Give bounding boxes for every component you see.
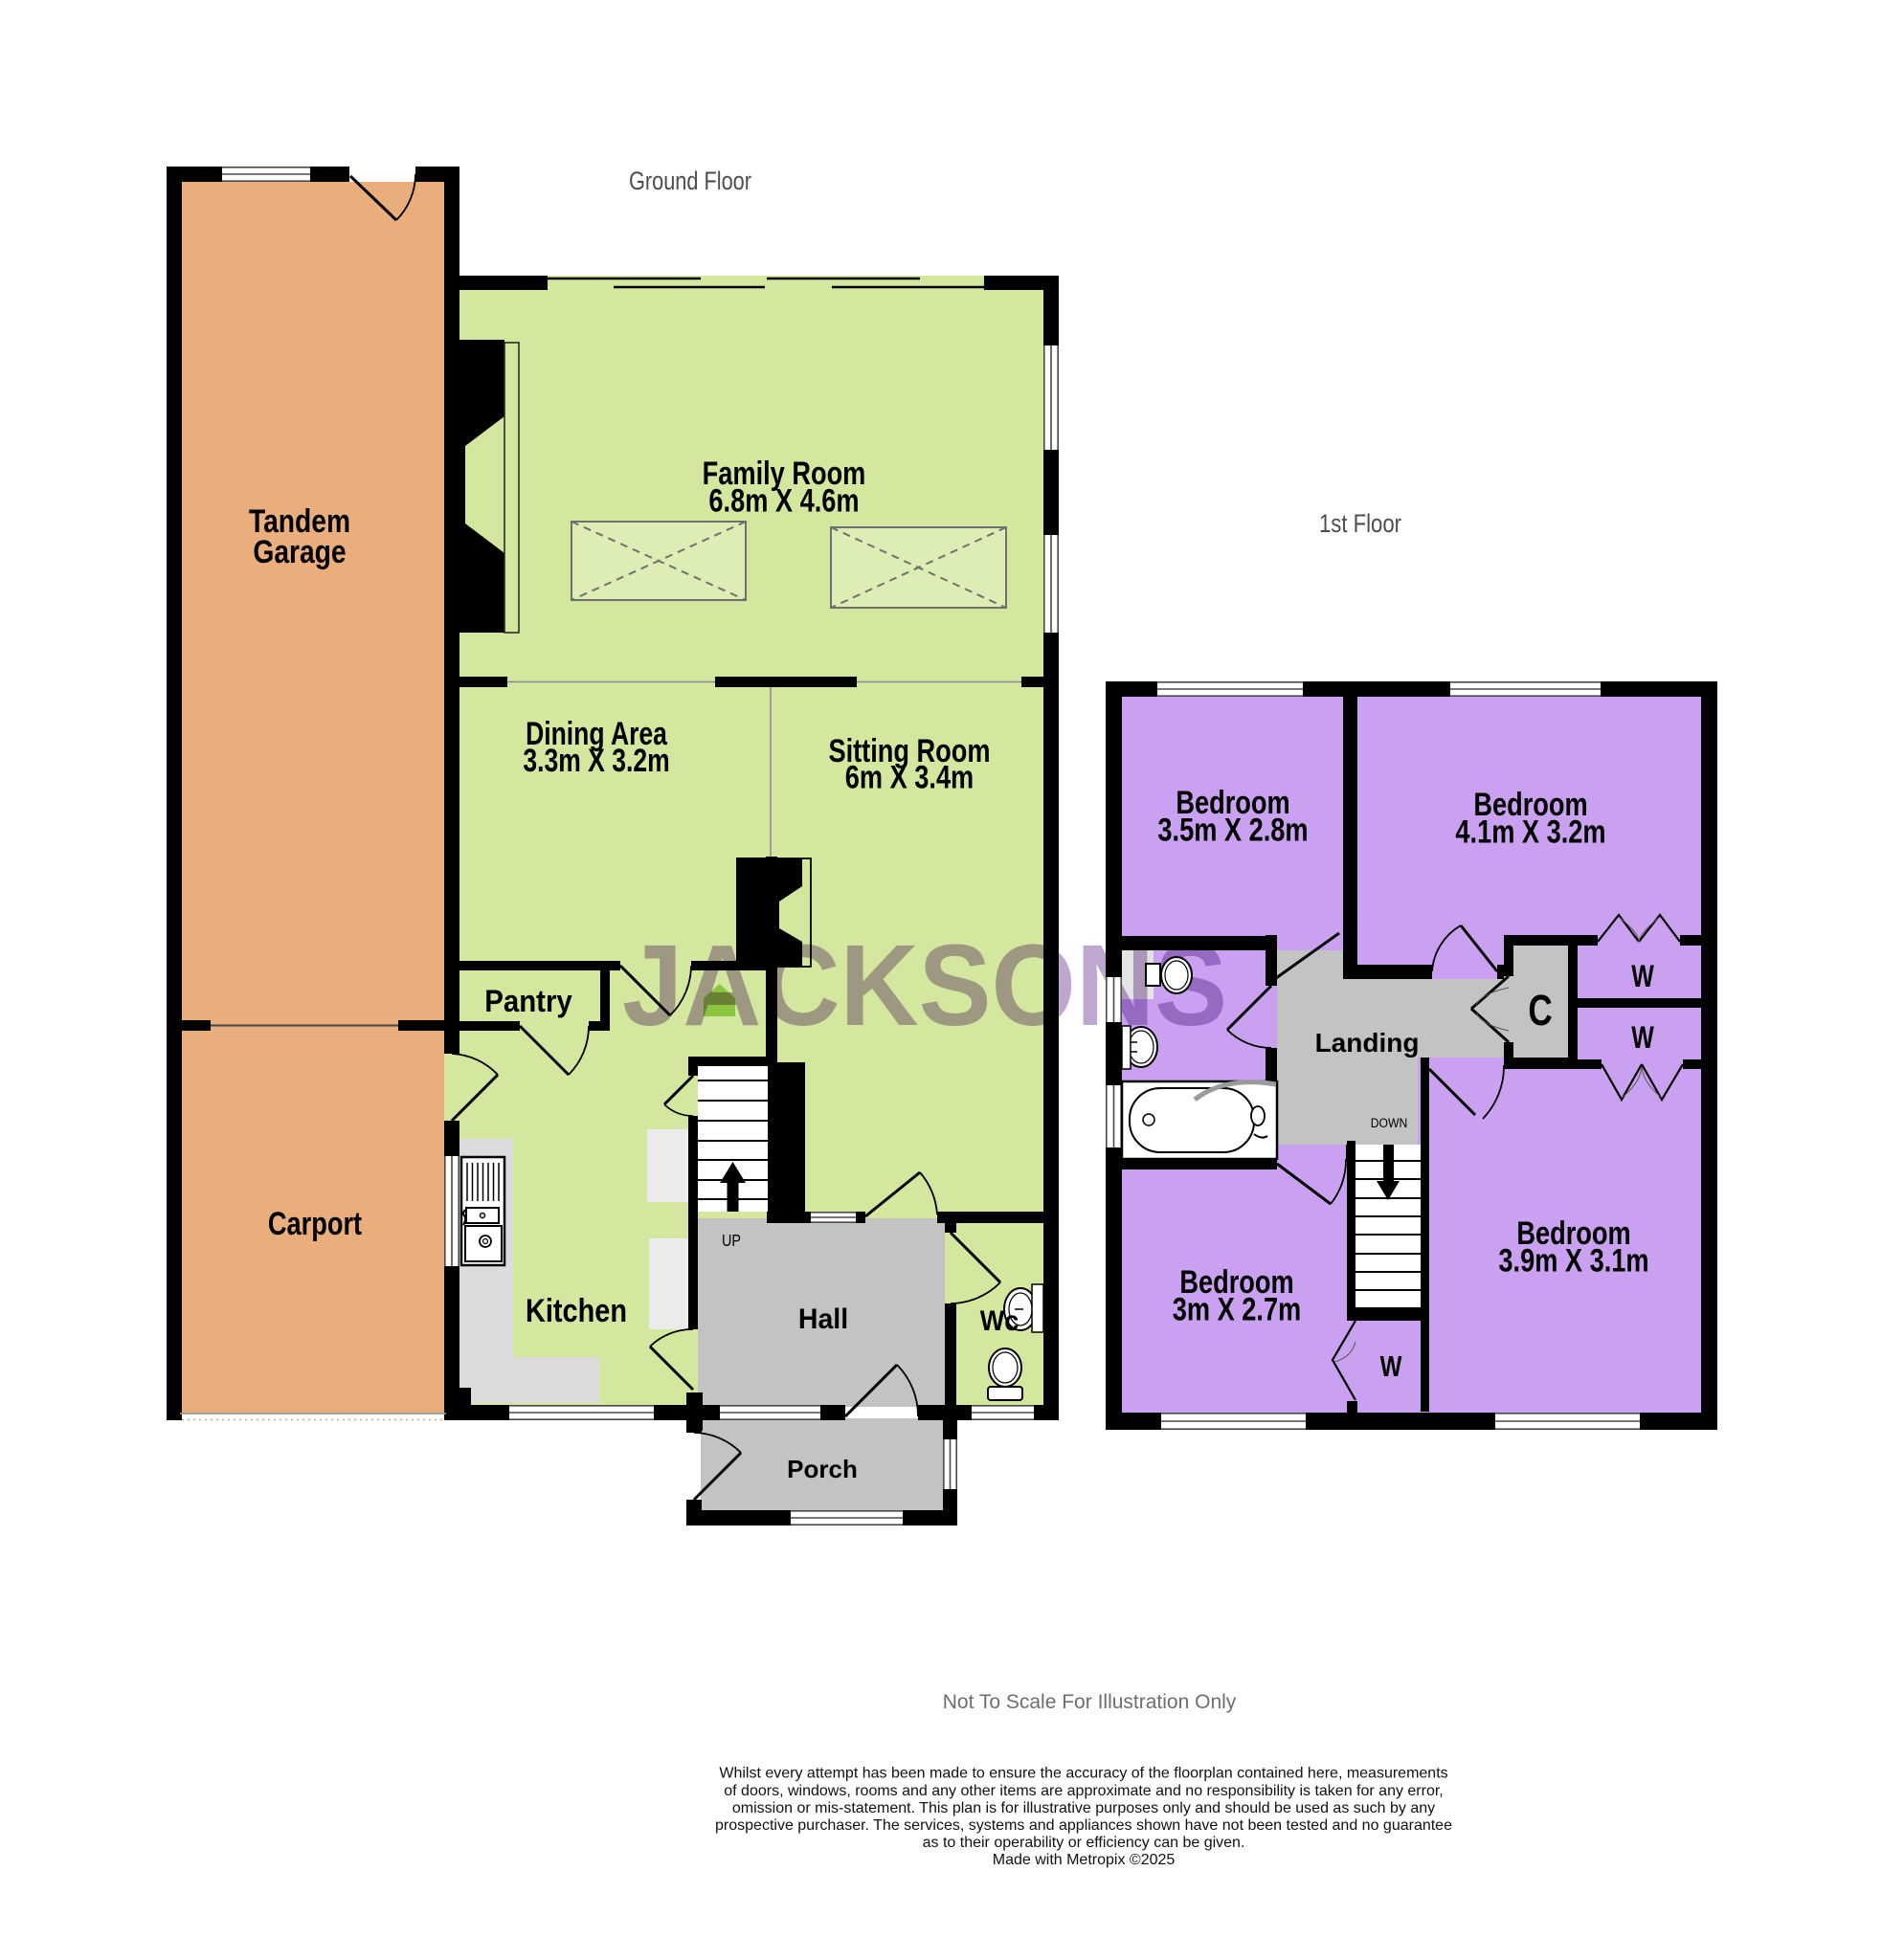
- svg-text:of doors, windows, rooms and a: of doors, windows, rooms and any other i…: [724, 1783, 1443, 1799]
- svg-text:Landing: Landing: [1315, 1028, 1420, 1058]
- svg-text:DOWN: DOWN: [1371, 1115, 1408, 1130]
- svg-text:3.3m X 3.2m: 3.3m X 3.2m: [523, 743, 669, 779]
- svg-text:Carport: Carport: [268, 1205, 362, 1242]
- svg-text:Hall: Hall: [798, 1303, 848, 1335]
- svg-text:UP: UP: [722, 1232, 741, 1251]
- svg-text:1st Floor: 1st Floor: [1319, 510, 1401, 539]
- svg-text:Pantry: Pantry: [484, 984, 572, 1018]
- svg-text:3m X 2.7m: 3m X 2.7m: [1173, 1291, 1301, 1328]
- svg-text:Not To Scale For Illustration: Not To Scale For Illustration Only: [943, 1691, 1237, 1713]
- svg-text:Made with Metropix ©2025: Made with Metropix ©2025: [993, 1852, 1176, 1868]
- svg-text:W: W: [1631, 1021, 1654, 1056]
- svg-text:C: C: [1528, 986, 1552, 1035]
- svg-text:Garage: Garage: [253, 534, 346, 570]
- svg-text:prospective purchaser. The ser: prospective purchaser. The services, sys…: [715, 1817, 1452, 1834]
- svg-text:Kitchen: Kitchen: [526, 1292, 627, 1329]
- svg-text:3.5m X 2.8m: 3.5m X 2.8m: [1157, 812, 1308, 849]
- svg-text:Ground Floor: Ground Floor: [629, 167, 751, 196]
- svg-text:Porch: Porch: [787, 1455, 858, 1483]
- svg-text:Wc: Wc: [980, 1305, 1019, 1338]
- svg-text:omission or mis-statement. Thi: omission or mis-statement. This plan is …: [732, 1800, 1435, 1816]
- svg-text:W: W: [1380, 1349, 1402, 1383]
- svg-text:W: W: [1631, 960, 1654, 994]
- svg-text:3.9m X 3.1m: 3.9m X 3.1m: [1498, 1242, 1648, 1280]
- svg-text:6m X 3.4m: 6m X 3.4m: [845, 759, 974, 796]
- svg-text:as to their operability or eff: as to their operability or efficiency ca…: [923, 1835, 1245, 1851]
- svg-text:6.8m X 4.6m: 6.8m X 4.6m: [708, 482, 859, 520]
- svg-text:Whilst every attempt has been: Whilst every attempt has been made to en…: [719, 1766, 1447, 1782]
- svg-text:4.1m X 3.2m: 4.1m X 3.2m: [1455, 813, 1605, 851]
